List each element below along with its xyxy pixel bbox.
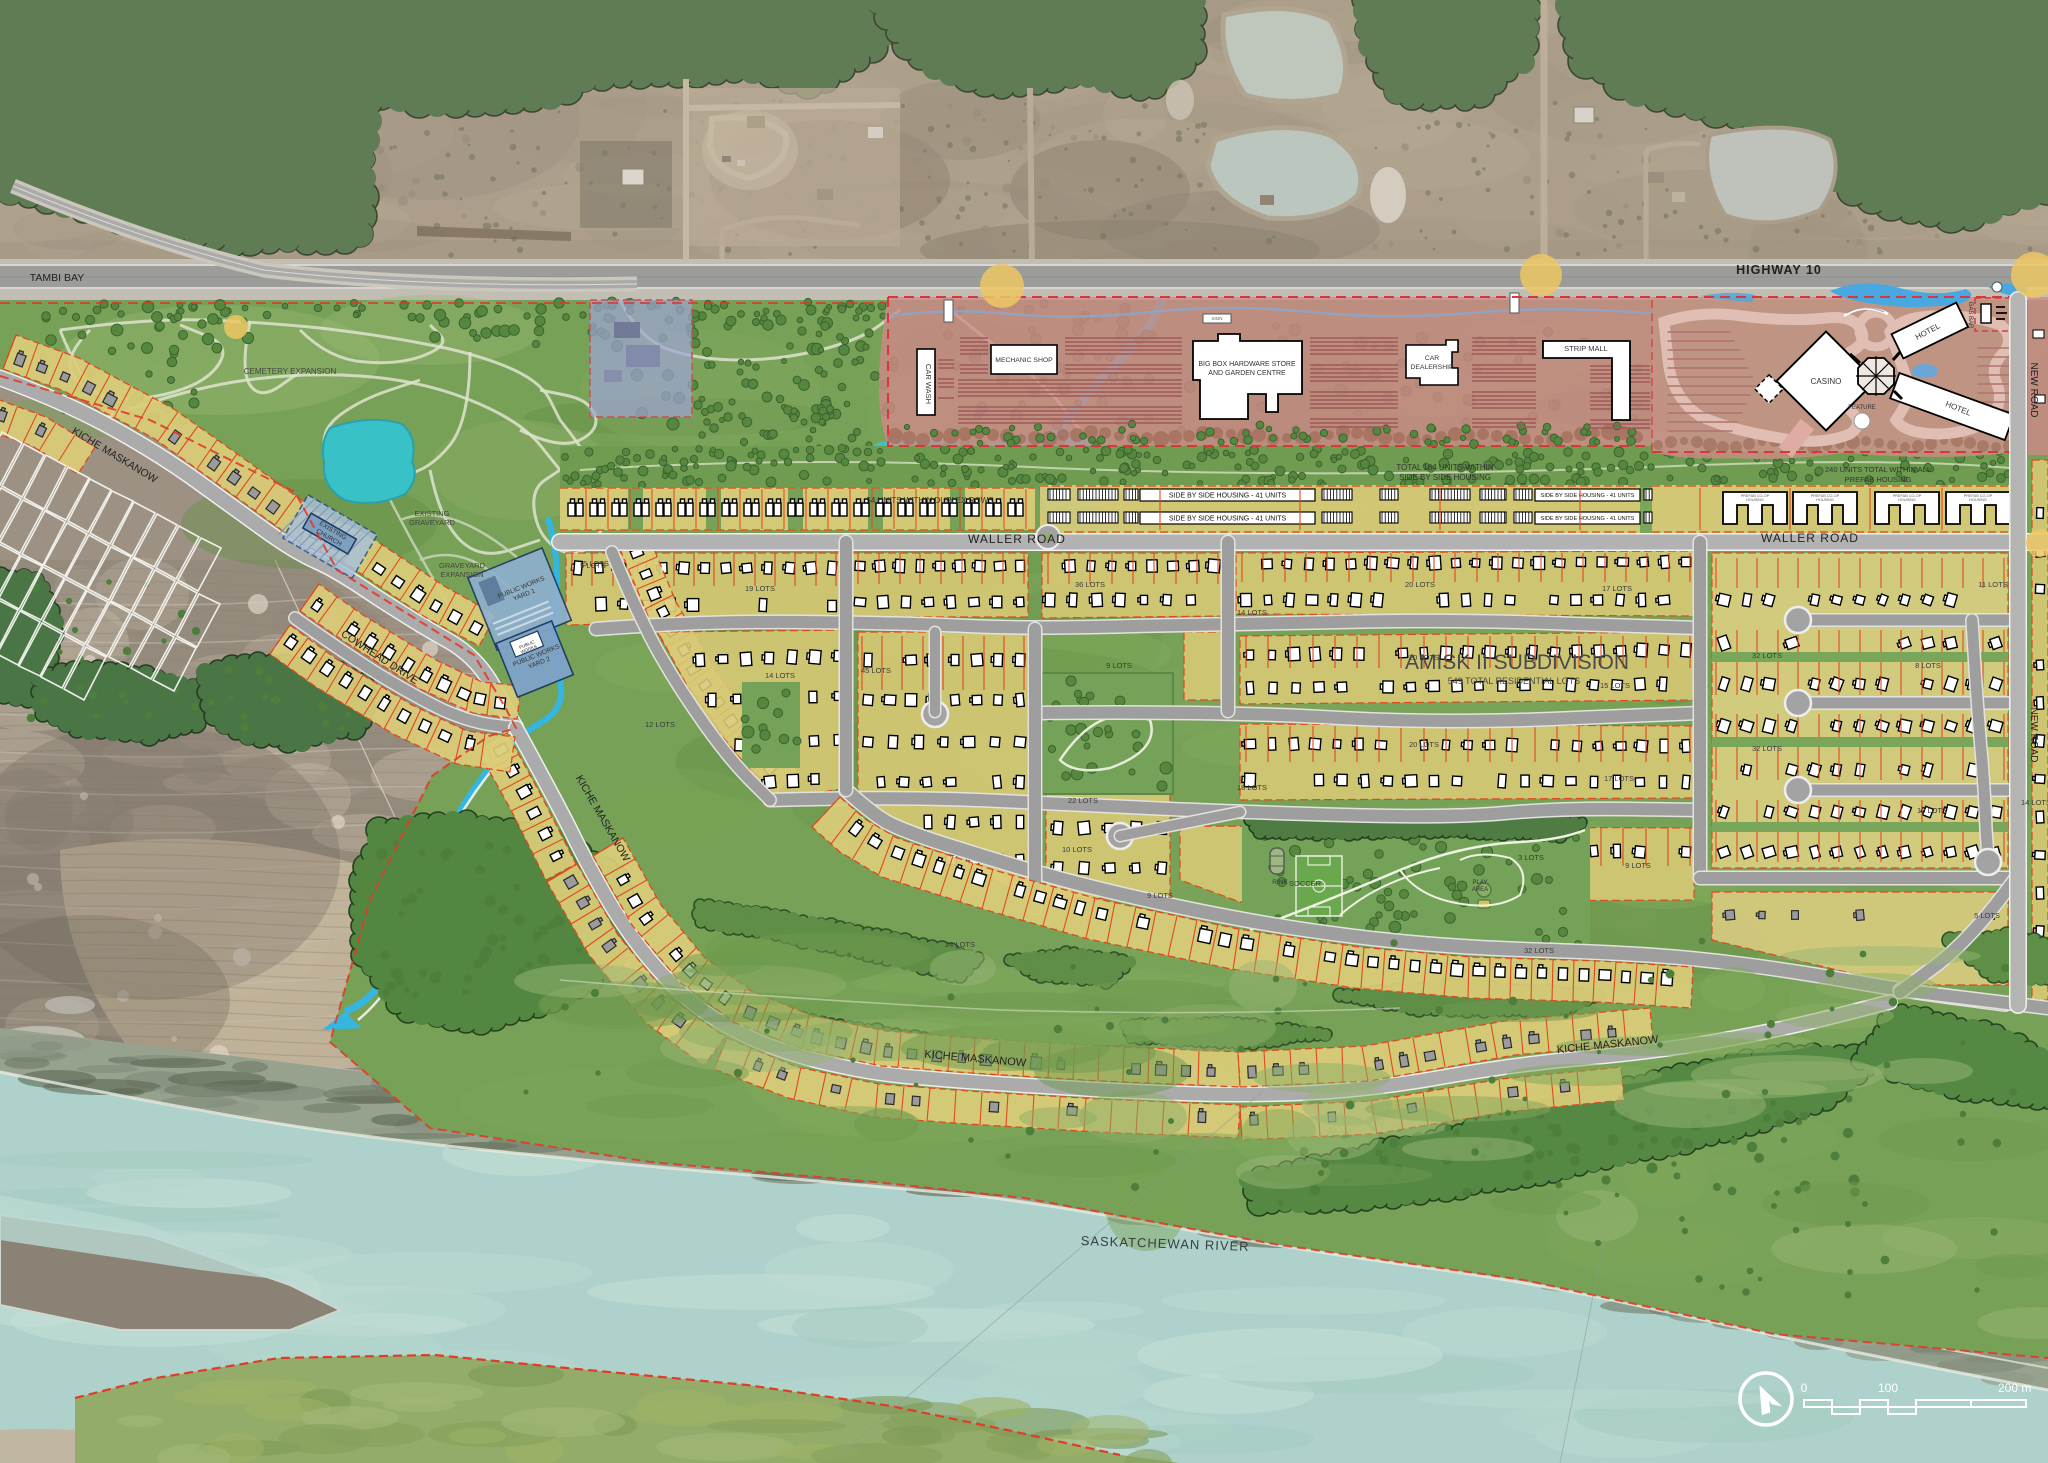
svg-text:SIDE BY SIDE HOUSING - 41 UNIT: SIDE BY SIDE HOUSING - 41 UNITS bbox=[1169, 493, 1287, 500]
svg-text:SIDE BY SIDE HOUSING - 41 UNIT: SIDE BY SIDE HOUSING - 41 UNITS bbox=[1541, 516, 1635, 522]
svg-text:SIDE BY SIDE HOUSING - 41 UNIT: SIDE BY SIDE HOUSING - 41 UNITS bbox=[1169, 516, 1287, 523]
svg-text:SIDE BY SIDE HOUSING - 41 UNIT: SIDE BY SIDE HOUSING - 41 UNITS bbox=[1541, 493, 1635, 499]
